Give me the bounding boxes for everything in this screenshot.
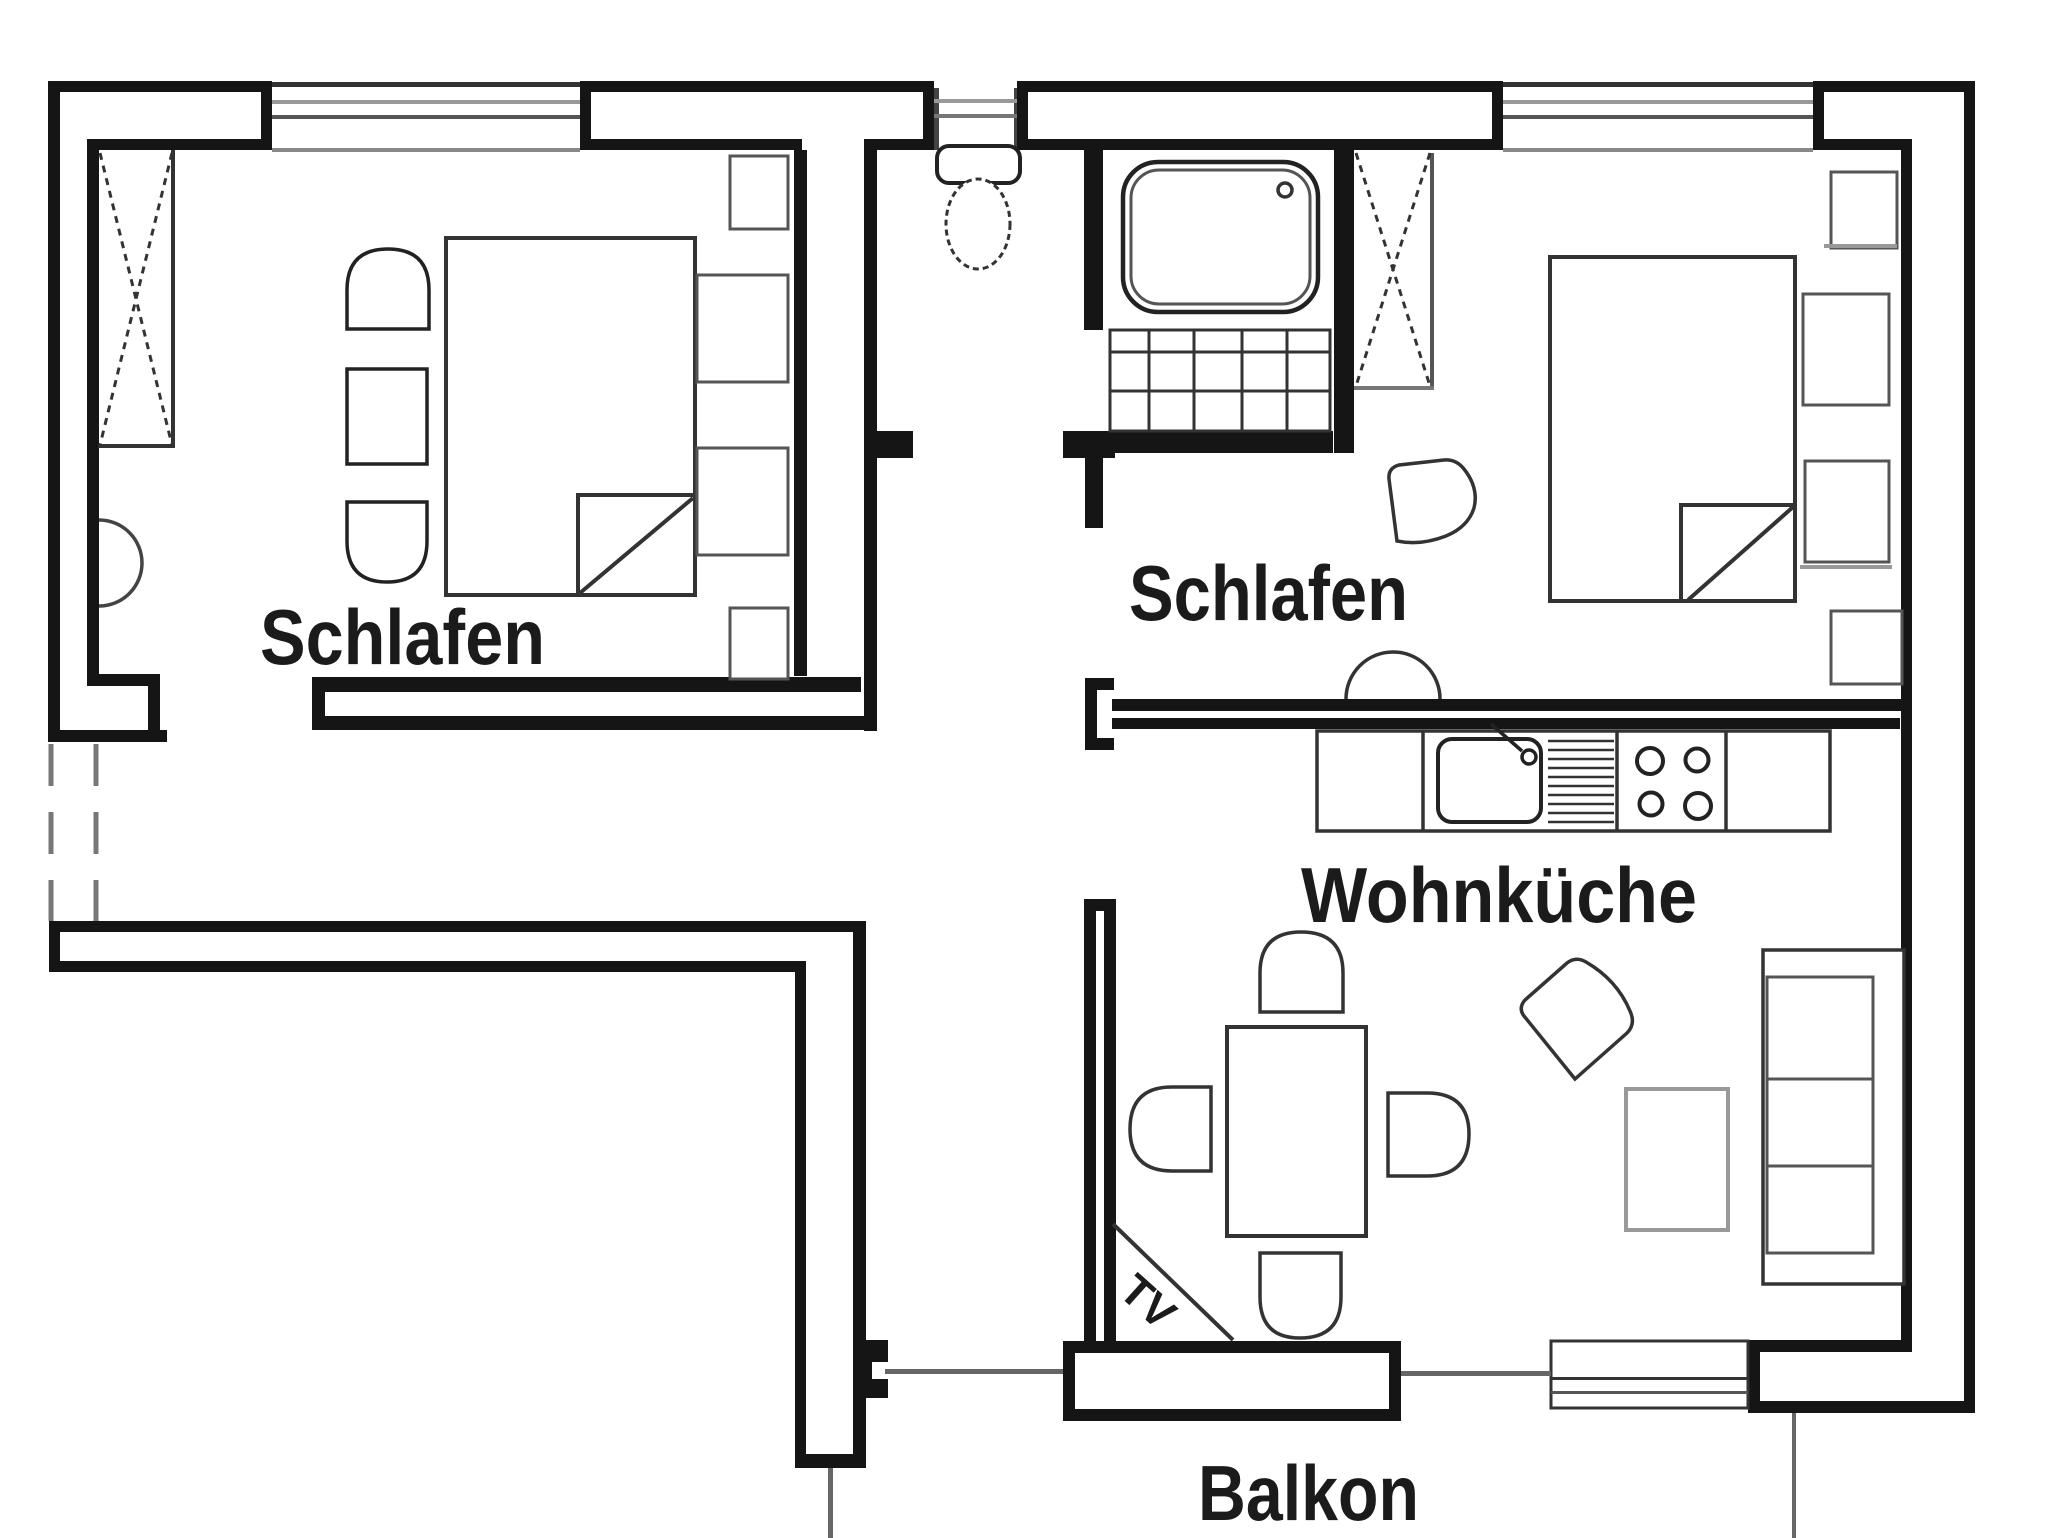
svg-text:Balkon: Balkon (1198, 1449, 1419, 1537)
svg-text:Wohnküche: Wohnküche (1301, 851, 1697, 939)
svg-text:Schlafen: Schlafen (260, 593, 545, 681)
svg-text:Schlafen: Schlafen (1129, 549, 1408, 637)
